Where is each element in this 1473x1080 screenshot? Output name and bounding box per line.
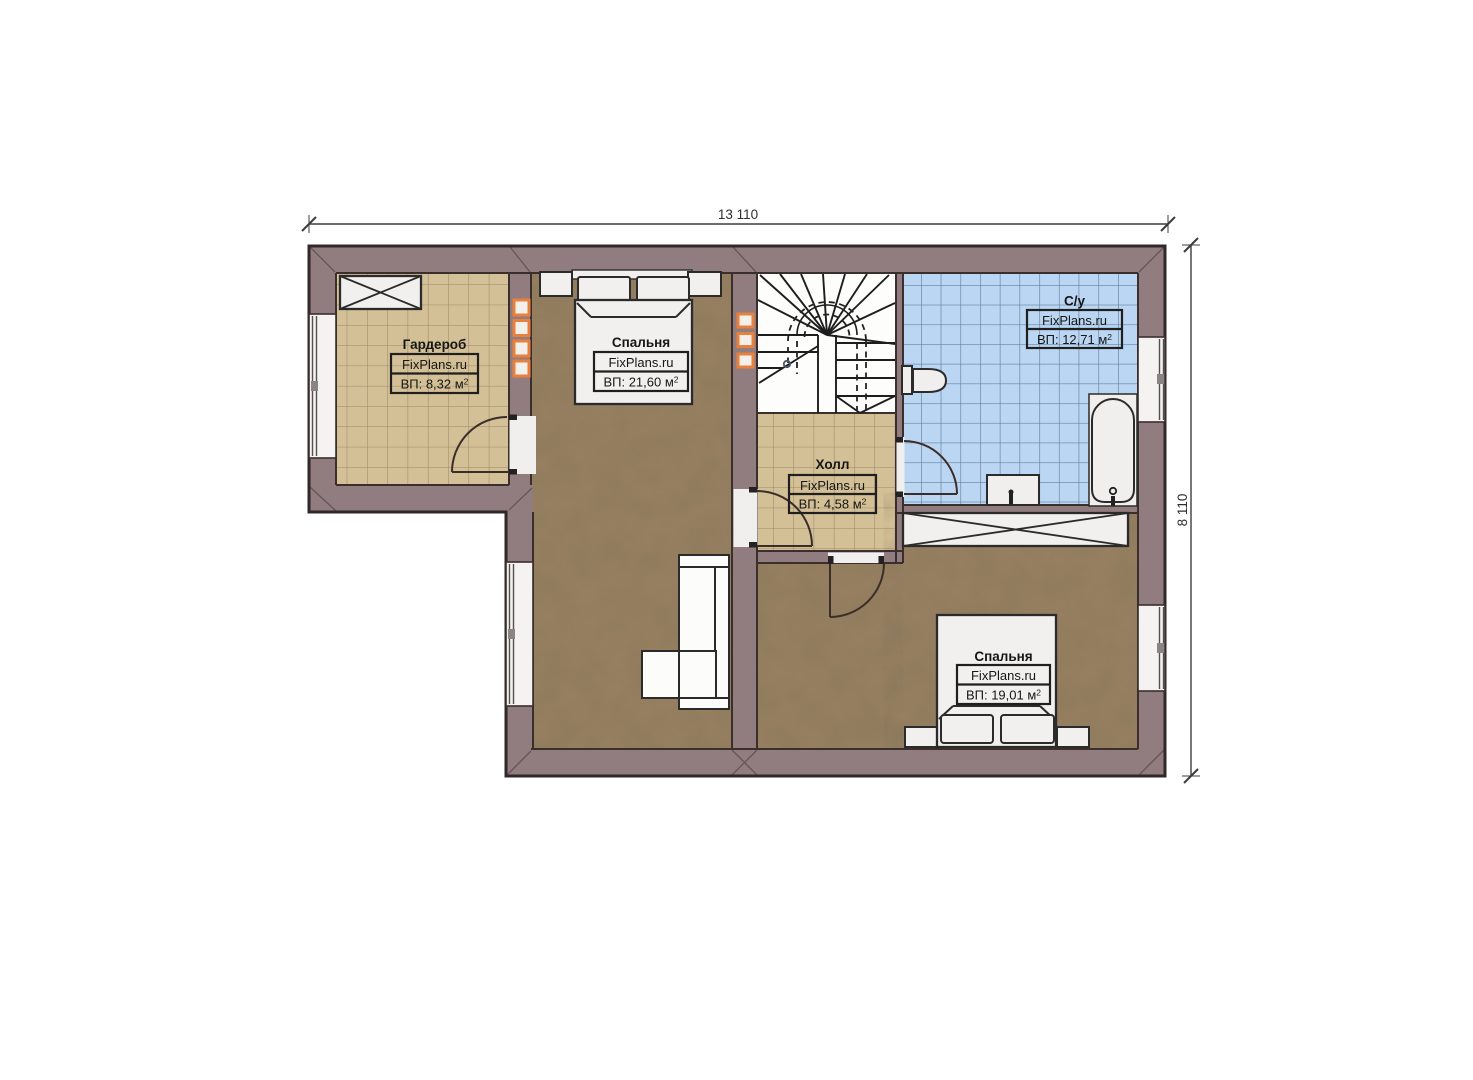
svg-text:13 110: 13 110 xyxy=(718,207,758,222)
svg-text:ВП: 4,58 м2: ВП: 4,58 м2 xyxy=(799,497,867,512)
svg-text:Холл: Холл xyxy=(816,457,850,472)
svg-text:Спальня: Спальня xyxy=(612,335,670,350)
svg-text:FixPlans.ru: FixPlans.ru xyxy=(800,478,865,493)
svg-text:FixPlans.ru: FixPlans.ru xyxy=(1042,313,1107,328)
svg-text:FixPlans.ru: FixPlans.ru xyxy=(608,355,673,370)
svg-text:ВП: 19,01 м2: ВП: 19,01 м2 xyxy=(966,688,1041,703)
svg-text:ВП: 12,71 м2: ВП: 12,71 м2 xyxy=(1037,332,1112,347)
svg-text:FixPlans.ru: FixPlans.ru xyxy=(971,668,1036,683)
svg-text:Спальня: Спальня xyxy=(974,649,1032,664)
svg-text:ВП: 21,60 м2: ВП: 21,60 м2 xyxy=(603,375,678,390)
svg-text:ВП: 8,32 м2: ВП: 8,32 м2 xyxy=(401,377,469,392)
svg-text:8 110: 8 110 xyxy=(1175,494,1190,527)
svg-text:FixPlans.ru: FixPlans.ru xyxy=(402,357,467,372)
svg-text:Гардероб: Гардероб xyxy=(403,337,467,352)
svg-text:С/у: С/у xyxy=(1064,294,1086,309)
